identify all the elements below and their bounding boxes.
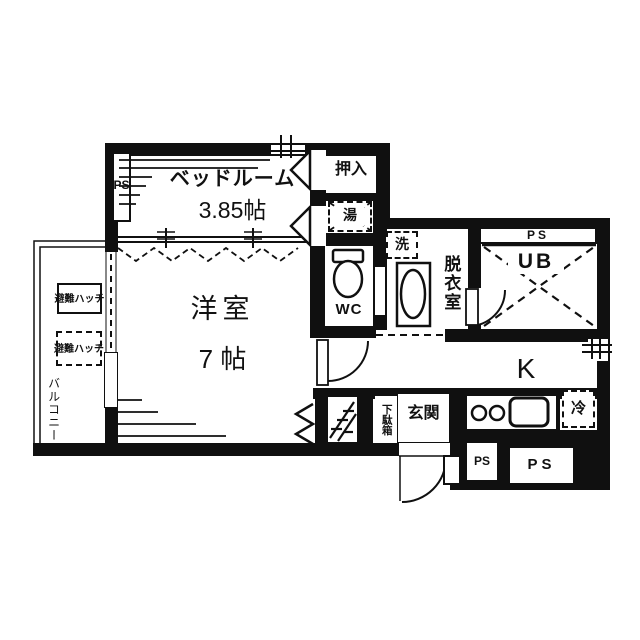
bedroom-size-label: 3.85帖: [175, 197, 290, 225]
wall-ub-bottom: [445, 329, 608, 342]
ub-door-opening: [468, 288, 481, 324]
ps-label-above-ub: PS: [479, 228, 597, 243]
hatch1-line2: ハッチ: [75, 294, 105, 305]
wall-entrance-right: [450, 391, 464, 443]
window-dashed-icon: [106, 252, 116, 352]
entrance-label: 玄関: [399, 402, 448, 426]
wall-wc-bottom: [310, 326, 376, 338]
ps-top-left-s: S: [122, 179, 130, 192]
bedroom-name-label: ベッドルーム: [150, 167, 315, 191]
ps-bottom-p: P: [474, 455, 482, 468]
hall-closet-box: [327, 396, 358, 443]
ps-label-bottom-horizontal: PS: [510, 448, 573, 483]
wall-closet-stub: [315, 396, 327, 443]
partition-accordion-door: [105, 228, 310, 261]
western-room-name-label: 洋室: [175, 293, 270, 327]
wall-shoebox-divider: [358, 396, 373, 443]
balcony-label: バルコニー: [44, 366, 62, 452]
closet-folding-door-icon: [296, 404, 313, 444]
washroom-door-leaf: [374, 266, 386, 316]
wc-door-arc: [317, 340, 368, 385]
entrance-alcove: [399, 443, 450, 503]
balcony-window: [104, 352, 118, 408]
western-room-lines: [118, 400, 226, 436]
evacuation-hatch-label-2: 避難ハッチ: [56, 333, 102, 365]
ps-label-top-left: PS: [112, 158, 131, 214]
shoe-box-label: 下駄箱: [376, 398, 396, 441]
unit-bath-label: UB: [508, 250, 564, 274]
western-room-size-label: 7 帖: [180, 343, 265, 375]
water-heater-label: 湯: [336, 206, 364, 226]
wc-label: WC: [329, 300, 369, 320]
hatch2-line2: ハッチ: [74, 344, 104, 355]
ps-label-bottom-vertical: PS: [467, 443, 497, 480]
dressing-room-label: 脱衣室: [436, 242, 464, 324]
basin-icon: [397, 263, 430, 326]
oshiire-door-icon: [291, 151, 310, 245]
hatch2-line1: 避難: [54, 344, 74, 355]
wall-alcove-right: [450, 443, 463, 490]
ps-bottom-s: S: [482, 455, 490, 468]
floor-plan: ベッドルーム 3.85帖 洋室 7 帖 押入 湯 洗 脱衣室 PS UB WC …: [0, 0, 640, 640]
ps-top-left-p: P: [113, 179, 121, 192]
evacuation-hatch-label-1: 避難ハッチ: [57, 284, 102, 314]
oshiire-label: 押入: [327, 159, 375, 181]
toilet-icon: [333, 250, 363, 297]
washer-label: 洗: [388, 234, 416, 256]
wall-top-bedroom: [105, 143, 387, 156]
hatch1-line1: 避難: [55, 294, 75, 305]
wall-wc-left: [310, 246, 325, 338]
kitchen-label: K: [505, 349, 547, 389]
wall-bottom-main: [105, 443, 400, 456]
oshiire-door-opening-2: [310, 206, 326, 246]
kitchen-counter: [463, 392, 560, 433]
fridge-label: 冷: [564, 396, 593, 422]
